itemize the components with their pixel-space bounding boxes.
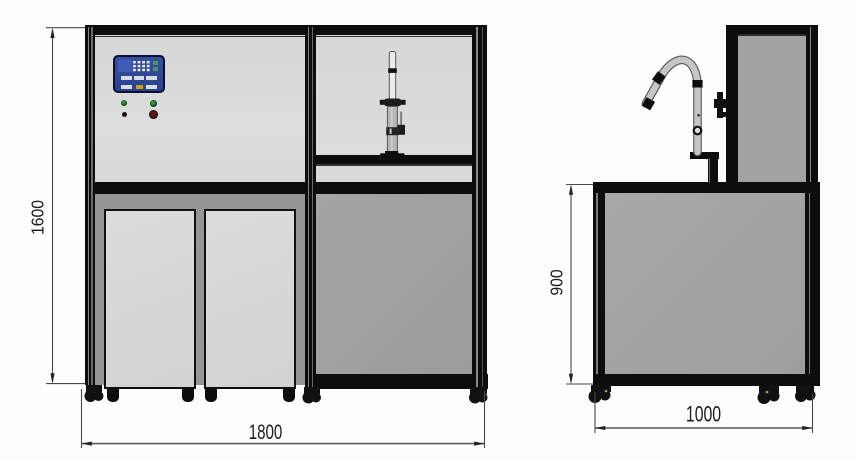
svg-text:1800: 1800 (249, 419, 283, 443)
svg-text:1000: 1000 (686, 403, 721, 427)
svg-text:1600: 1600 (28, 200, 48, 235)
svg-text:900: 900 (547, 269, 567, 295)
